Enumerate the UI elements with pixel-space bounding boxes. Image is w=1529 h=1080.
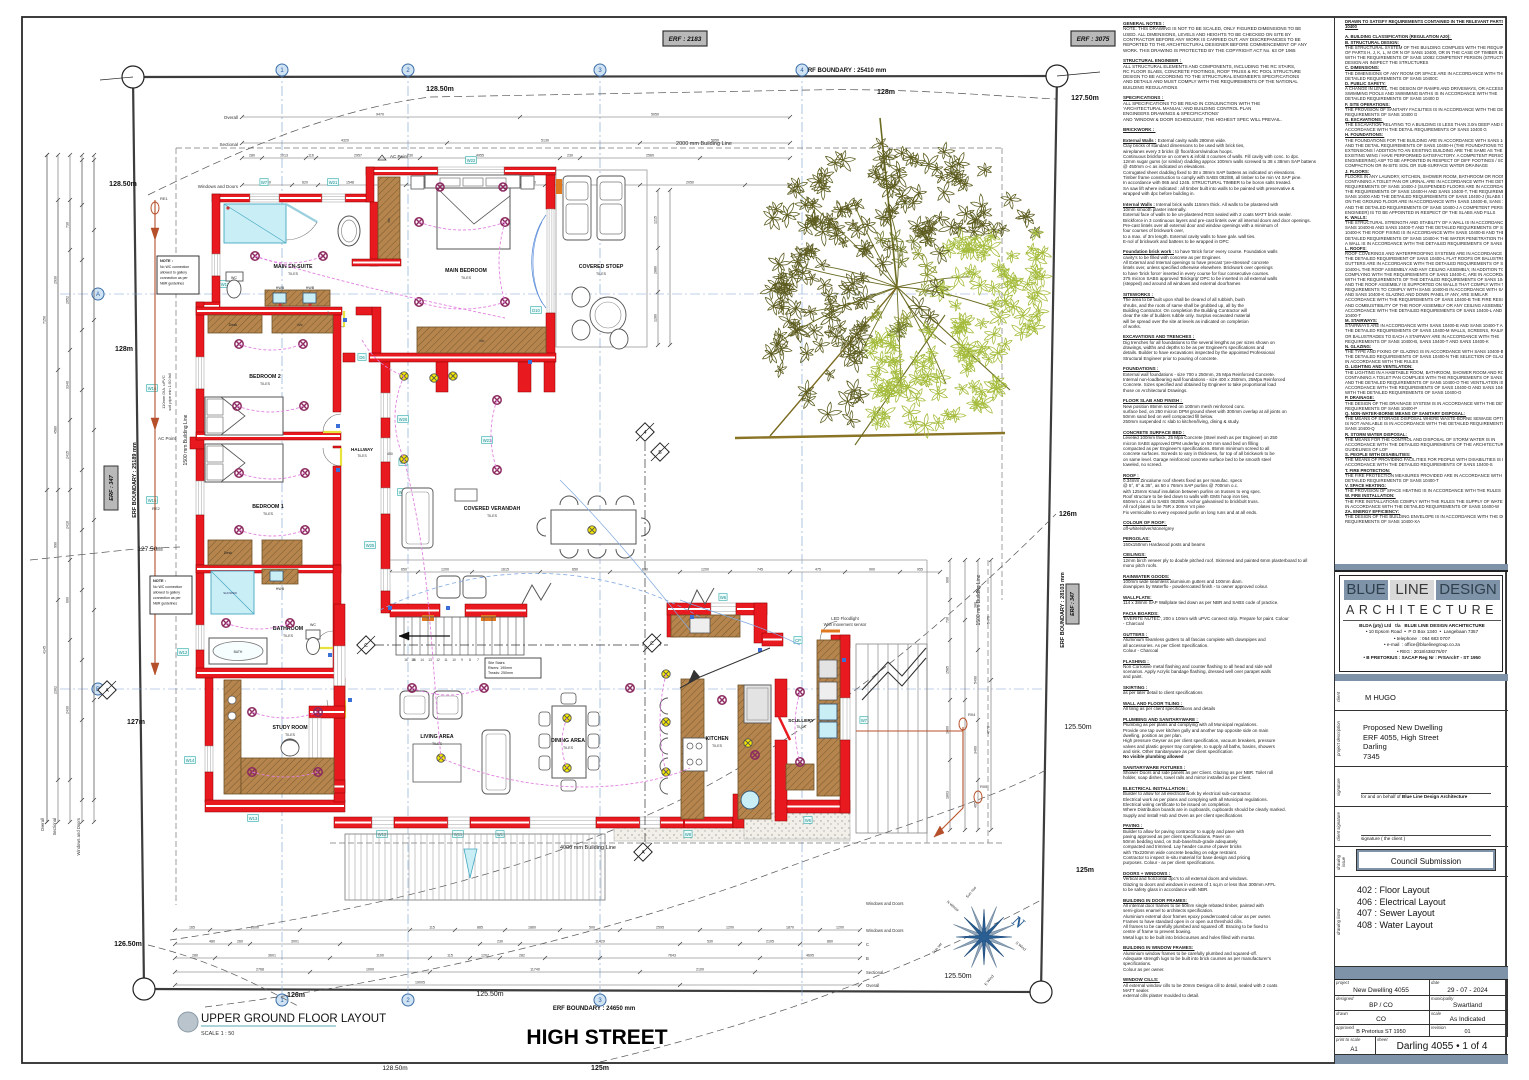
- svg-text:280: 280: [192, 954, 198, 958]
- svg-text:RE1: RE1: [160, 196, 169, 201]
- svg-text:B: B: [866, 956, 869, 961]
- svg-text:ERF : 347: ERF : 347: [1070, 591, 1076, 616]
- svg-text:connection as per: connection as per: [153, 596, 181, 600]
- svg-text:3460: 3460: [974, 746, 978, 754]
- svg-text:Sun set: Sun set: [932, 941, 944, 954]
- svg-text:W7: W7: [261, 180, 268, 185]
- svg-text:HALLWAY: HALLWAY: [351, 447, 373, 452]
- svg-text:UPPER GROUND FLOOR LAYOUT: UPPER GROUND FLOOR LAYOUT: [201, 1013, 386, 1025]
- svg-text:620: 620: [302, 181, 308, 185]
- svg-text:110mm DIA. uPVC: 110mm DIA. uPVC: [161, 375, 166, 409]
- svg-text:1500 mm Building Line: 1500 mm Building Line: [183, 414, 189, 465]
- svg-text:4320: 4320: [341, 139, 349, 143]
- svg-text:S Wind: S Wind: [1015, 941, 1027, 952]
- svg-text:BEDROOM 2: BEDROOM 2: [249, 374, 281, 380]
- svg-text:2880: 2880: [654, 266, 658, 274]
- svg-text:allowed to gallery: allowed to gallery: [153, 591, 180, 595]
- svg-text:1215: 1215: [654, 216, 658, 224]
- svg-text:R05: R05: [980, 784, 988, 789]
- svg-text:127.50m: 127.50m: [1071, 95, 1099, 102]
- svg-text:14: 14: [420, 658, 424, 662]
- svg-text:5470: 5470: [987, 616, 991, 624]
- svg-text:1870: 1870: [786, 926, 794, 930]
- svg-text:650: 650: [401, 568, 407, 572]
- svg-text:ERF BOUNDARY : 24650 mm: ERF BOUNDARY : 24650 mm: [553, 1006, 635, 1012]
- svg-text:3001: 3001: [291, 940, 299, 944]
- svg-text:Desk: Desk: [224, 551, 232, 555]
- svg-text:1500 mm Building Line: 1500 mm Building Line: [976, 574, 982, 625]
- svg-text:11429: 11429: [595, 940, 605, 944]
- svg-text:Sun rise: Sun rise: [965, 886, 977, 899]
- svg-text:W23: W23: [483, 438, 492, 443]
- svg-text:W22: W22: [467, 158, 476, 163]
- svg-text:2595: 2595: [656, 926, 664, 930]
- svg-text:bic: bic: [479, 338, 484, 343]
- svg-text:260: 260: [237, 940, 243, 944]
- svg-text:5130: 5130: [541, 139, 549, 143]
- svg-text:2302: 2302: [54, 686, 58, 694]
- svg-text:885: 885: [477, 926, 483, 930]
- svg-text:NOTE :: NOTE :: [153, 579, 166, 583]
- svg-text:W21: W21: [329, 180, 338, 185]
- svg-text:10: 10: [452, 658, 456, 662]
- svg-text:AC Point: AC Point: [390, 154, 409, 159]
- svg-text:W13: W13: [249, 816, 258, 821]
- svg-text:2768: 2768: [256, 968, 264, 972]
- svg-text:With movement sensor: With movement sensor: [824, 622, 867, 627]
- svg-text:W8: W8: [685, 832, 692, 837]
- svg-text:COVERED STOEP: COVERED STOEP: [579, 264, 624, 270]
- svg-text:TILES: TILES: [263, 512, 274, 516]
- svg-text:DINING AREA: DINING AREA: [551, 738, 585, 744]
- svg-text:2930: 2930: [54, 276, 58, 284]
- svg-text:2410: 2410: [66, 521, 70, 529]
- svg-text:3601: 3601: [268, 954, 276, 958]
- svg-text:ERF : 3075: ERF : 3075: [1077, 36, 1110, 43]
- svg-text:230: 230: [497, 940, 503, 944]
- svg-text:HWB: HWB: [276, 286, 285, 290]
- svg-text:116: 116: [308, 154, 314, 158]
- svg-text:b/c: b/c: [297, 323, 302, 327]
- svg-text:HIGH STREET: HIGH STREET: [526, 1026, 667, 1049]
- svg-text:Sectional: Sectional: [866, 970, 883, 975]
- svg-text:2430: 2430: [66, 706, 70, 714]
- svg-text:900: 900: [869, 568, 875, 572]
- svg-text:730: 730: [946, 617, 950, 623]
- svg-text:MAIN BEDROOM: MAIN BEDROOM: [445, 268, 487, 274]
- svg-text:1200: 1200: [726, 926, 734, 930]
- svg-text:1200: 1200: [836, 926, 844, 930]
- svg-text:MAIN EN-SUITE: MAIN EN-SUITE: [274, 264, 313, 270]
- svg-text:Windows and Doors: Windows and Doors: [76, 818, 81, 855]
- svg-text:RE2: RE2: [152, 506, 161, 511]
- svg-text:W5: W5: [805, 818, 812, 823]
- svg-text:3340: 3340: [66, 381, 70, 389]
- svg-text:C: C: [866, 942, 869, 947]
- svg-text:TILES: TILES: [357, 454, 367, 458]
- svg-text:127m: 127m: [127, 719, 145, 726]
- svg-text:16: 16: [404, 658, 408, 662]
- svg-text:ERF BOUNDARY : 25189 mm: ERF BOUNDARY : 25189 mm: [132, 442, 138, 518]
- svg-text:955: 955: [917, 568, 923, 572]
- svg-text:TILES: TILES: [283, 634, 294, 638]
- svg-text:TILES: TILES: [712, 744, 723, 748]
- svg-text:9470: 9470: [376, 113, 384, 117]
- svg-text:No WC connection: No WC connection: [160, 265, 189, 269]
- svg-text:LED Floodlight: LED Floodlight: [831, 616, 859, 621]
- svg-text:7150: 7150: [43, 316, 47, 324]
- svg-text:11740: 11740: [530, 968, 540, 972]
- svg-text:115: 115: [447, 954, 453, 958]
- svg-text:N: N: [1008, 913, 1028, 934]
- svg-text:650: 650: [572, 568, 578, 572]
- svg-text:1585: 1585: [946, 666, 950, 674]
- svg-text:Desk: Desk: [229, 323, 238, 327]
- svg-text:1207: 1207: [481, 954, 489, 958]
- svg-text:125m: 125m: [1076, 867, 1094, 874]
- svg-text:1280: 1280: [654, 314, 658, 322]
- svg-text:4580: 4580: [54, 426, 58, 434]
- svg-text:ERF : 2183: ERF : 2183: [669, 36, 702, 43]
- svg-text:990: 990: [54, 542, 58, 548]
- svg-text:11: 11: [444, 658, 448, 662]
- svg-text:165: 165: [189, 926, 195, 930]
- svg-text:Risers: 190mm: Risers: 190mm: [488, 666, 512, 670]
- svg-text:2000 mm Building Line: 2000 mm Building Line: [676, 141, 732, 147]
- svg-text:1000: 1000: [366, 968, 374, 972]
- svg-text:Windows and Doors: Windows and Doors: [198, 184, 239, 189]
- svg-text:7: 7: [477, 658, 479, 662]
- svg-text:allowed to gallery: allowed to gallery: [160, 271, 187, 275]
- svg-text:SCULLERY: SCULLERY: [788, 718, 814, 724]
- svg-text:LIVING AREA: LIVING AREA: [420, 734, 453, 740]
- svg-text:TILES: TILES: [461, 276, 472, 280]
- svg-text:HWB: HWB: [276, 587, 285, 591]
- svg-text:BEDROOM 1: BEDROOM 1: [252, 504, 284, 510]
- svg-text:5050: 5050: [651, 113, 659, 117]
- svg-text:2105: 2105: [766, 940, 774, 944]
- svg-text:WC: WC: [231, 276, 237, 280]
- svg-text:1200: 1200: [701, 568, 709, 572]
- svg-text:730: 730: [66, 222, 70, 228]
- svg-text:125.50m: 125.50m: [944, 973, 971, 980]
- svg-text:13: 13: [428, 658, 432, 662]
- svg-text:2652: 2652: [66, 296, 70, 304]
- svg-text:900: 900: [946, 577, 950, 583]
- svg-text:126.50m: 126.50m: [114, 941, 142, 948]
- svg-text:8: 8: [469, 658, 471, 662]
- svg-text:475: 475: [815, 568, 821, 572]
- svg-text:W25: W25: [366, 543, 375, 548]
- svg-text:BATH: BATH: [234, 650, 243, 654]
- svg-text:125.50m: 125.50m: [1064, 724, 1091, 731]
- svg-text:2560: 2560: [646, 154, 654, 158]
- svg-text:Overall: Overall: [866, 983, 879, 988]
- svg-text:450: 450: [387, 452, 393, 456]
- svg-text:A: A: [96, 292, 100, 298]
- svg-text:W12: W12: [179, 650, 188, 655]
- svg-text:860: 860: [827, 940, 833, 944]
- svg-text:W6: W6: [720, 595, 727, 600]
- svg-text:128.50m: 128.50m: [426, 86, 454, 93]
- svg-text:ERF BOUNDARY : 25410 mm: ERF BOUNDARY : 25410 mm: [804, 68, 886, 74]
- svg-text:2415: 2415: [66, 451, 70, 459]
- svg-text:D10: D10: [532, 308, 540, 313]
- svg-text:4000 mm Building Line: 4000 mm Building Line: [560, 845, 616, 851]
- svg-text:TILES: TILES: [596, 272, 607, 276]
- svg-text:4770: 4770: [987, 726, 991, 734]
- svg-text:9: 9: [461, 658, 463, 662]
- svg-text:soil pipe min 1:50 fall: soil pipe min 1:50 fall: [167, 373, 172, 410]
- svg-text:128m: 128m: [115, 346, 133, 353]
- svg-text:15: 15: [411, 658, 415, 662]
- svg-text:1200: 1200: [441, 568, 449, 572]
- svg-text:1803: 1803: [946, 791, 950, 799]
- svg-text:19005: 19005: [415, 981, 425, 985]
- svg-text:KITCHEN: KITCHEN: [705, 736, 728, 742]
- svg-text:connection as per: connection as per: [160, 276, 188, 280]
- svg-text:TILES: TILES: [487, 514, 498, 518]
- svg-text:Site Stairs:: Site Stairs:: [488, 661, 505, 665]
- svg-text:500: 500: [589, 926, 595, 930]
- svg-text:TILES: TILES: [796, 725, 806, 729]
- svg-text:1100: 1100: [376, 954, 384, 958]
- svg-text:TILES: TILES: [288, 272, 299, 276]
- svg-text:480: 480: [209, 940, 215, 944]
- svg-text:126m: 126m: [1059, 511, 1077, 518]
- svg-text:W16: W16: [148, 386, 157, 391]
- svg-text:Overall: Overall: [224, 115, 238, 120]
- svg-text:2957: 2957: [354, 154, 362, 158]
- svg-text:W15: W15: [148, 498, 157, 503]
- svg-text:SCALE 1 : 50: SCALE 1 : 50: [201, 1031, 234, 1037]
- svg-text:230: 230: [567, 154, 573, 158]
- svg-text:380: 380: [974, 602, 978, 608]
- svg-text:TILES: TILES: [260, 382, 271, 386]
- svg-text:E Wind: E Wind: [984, 974, 995, 986]
- svg-text:2050: 2050: [686, 181, 694, 185]
- svg-text:Sectional: Sectional: [219, 142, 238, 147]
- svg-text:745: 745: [757, 568, 763, 572]
- svg-text:Overall: Overall: [40, 818, 45, 831]
- svg-text:125.50m: 125.50m: [476, 991, 503, 998]
- svg-text:2100: 2100: [696, 968, 704, 972]
- svg-text:CP: CP: [795, 638, 801, 643]
- svg-text:280: 280: [249, 154, 255, 158]
- svg-text:128.50m: 128.50m: [382, 1065, 407, 1072]
- svg-text:282: 282: [519, 954, 525, 958]
- svg-text:AC Point: AC Point: [158, 436, 177, 441]
- svg-text:STUDY ROOM: STUDY ROOM: [272, 725, 307, 731]
- svg-text:Windows and Doors: Windows and Doors: [866, 928, 903, 933]
- svg-text:127.50m: 127.50m: [137, 546, 162, 553]
- svg-text:TILES: TILES: [563, 746, 574, 750]
- svg-text:W14: W14: [186, 758, 195, 763]
- svg-text:TILES: TILES: [285, 733, 296, 737]
- svg-text:12: 12: [436, 658, 440, 662]
- svg-text:126m: 126m: [287, 992, 305, 999]
- svg-text:4695: 4695: [806, 954, 814, 958]
- svg-text:Sectional: Sectional: [52, 818, 57, 835]
- svg-text:TILES: TILES: [432, 742, 443, 746]
- svg-text:5490: 5490: [974, 676, 978, 684]
- svg-text:ERF BOUNDARY : 28103 mm: ERF BOUNDARY : 28103 mm: [1060, 572, 1066, 648]
- svg-text:5050: 5050: [711, 139, 719, 143]
- svg-text:1615: 1615: [501, 568, 509, 572]
- svg-text:230: 230: [407, 154, 413, 158]
- svg-text:HWB: HWB: [306, 286, 315, 290]
- svg-text:WC: WC: [310, 623, 316, 627]
- svg-text:1000: 1000: [946, 726, 950, 734]
- svg-text:4955: 4955: [476, 154, 484, 158]
- svg-text:Treads: 250mm: Treads: 250mm: [488, 671, 513, 675]
- svg-text:115: 115: [429, 926, 435, 930]
- svg-text:W7: W7: [861, 718, 868, 723]
- svg-text:SHOWER: SHOWER: [223, 591, 237, 595]
- svg-text:No WC connection: No WC connection: [153, 585, 182, 589]
- svg-text:Windows and Doors: Windows and Doors: [866, 901, 903, 906]
- svg-text:N Winter: N Winter: [946, 900, 960, 913]
- svg-text:NBR guidelines: NBR guidelines: [153, 602, 177, 606]
- svg-text:7643: 7643: [668, 954, 676, 958]
- svg-text:ERF : 347: ERF : 347: [109, 474, 115, 500]
- svg-text:600: 600: [66, 597, 70, 603]
- svg-text:4145: 4145: [43, 646, 47, 654]
- svg-text:530: 530: [707, 940, 713, 944]
- svg-text:1860: 1860: [528, 926, 536, 930]
- svg-text:2600: 2600: [251, 926, 259, 930]
- svg-text:125m: 125m: [591, 1065, 609, 1072]
- svg-text:D6: D6: [359, 355, 365, 360]
- svg-text:NBR guidelines: NBR guidelines: [160, 282, 184, 286]
- svg-text:bic: bic: [387, 217, 391, 222]
- svg-text:1548: 1548: [346, 181, 354, 185]
- svg-text:W26: W26: [399, 417, 408, 422]
- svg-text:128.50m: 128.50m: [109, 181, 137, 188]
- svg-text:R04: R04: [968, 712, 976, 717]
- svg-text:NOTE :: NOTE :: [160, 259, 173, 263]
- svg-text:COVERED VERANDAH: COVERED VERANDAH: [464, 506, 521, 512]
- svg-text:1013: 1013: [280, 154, 288, 158]
